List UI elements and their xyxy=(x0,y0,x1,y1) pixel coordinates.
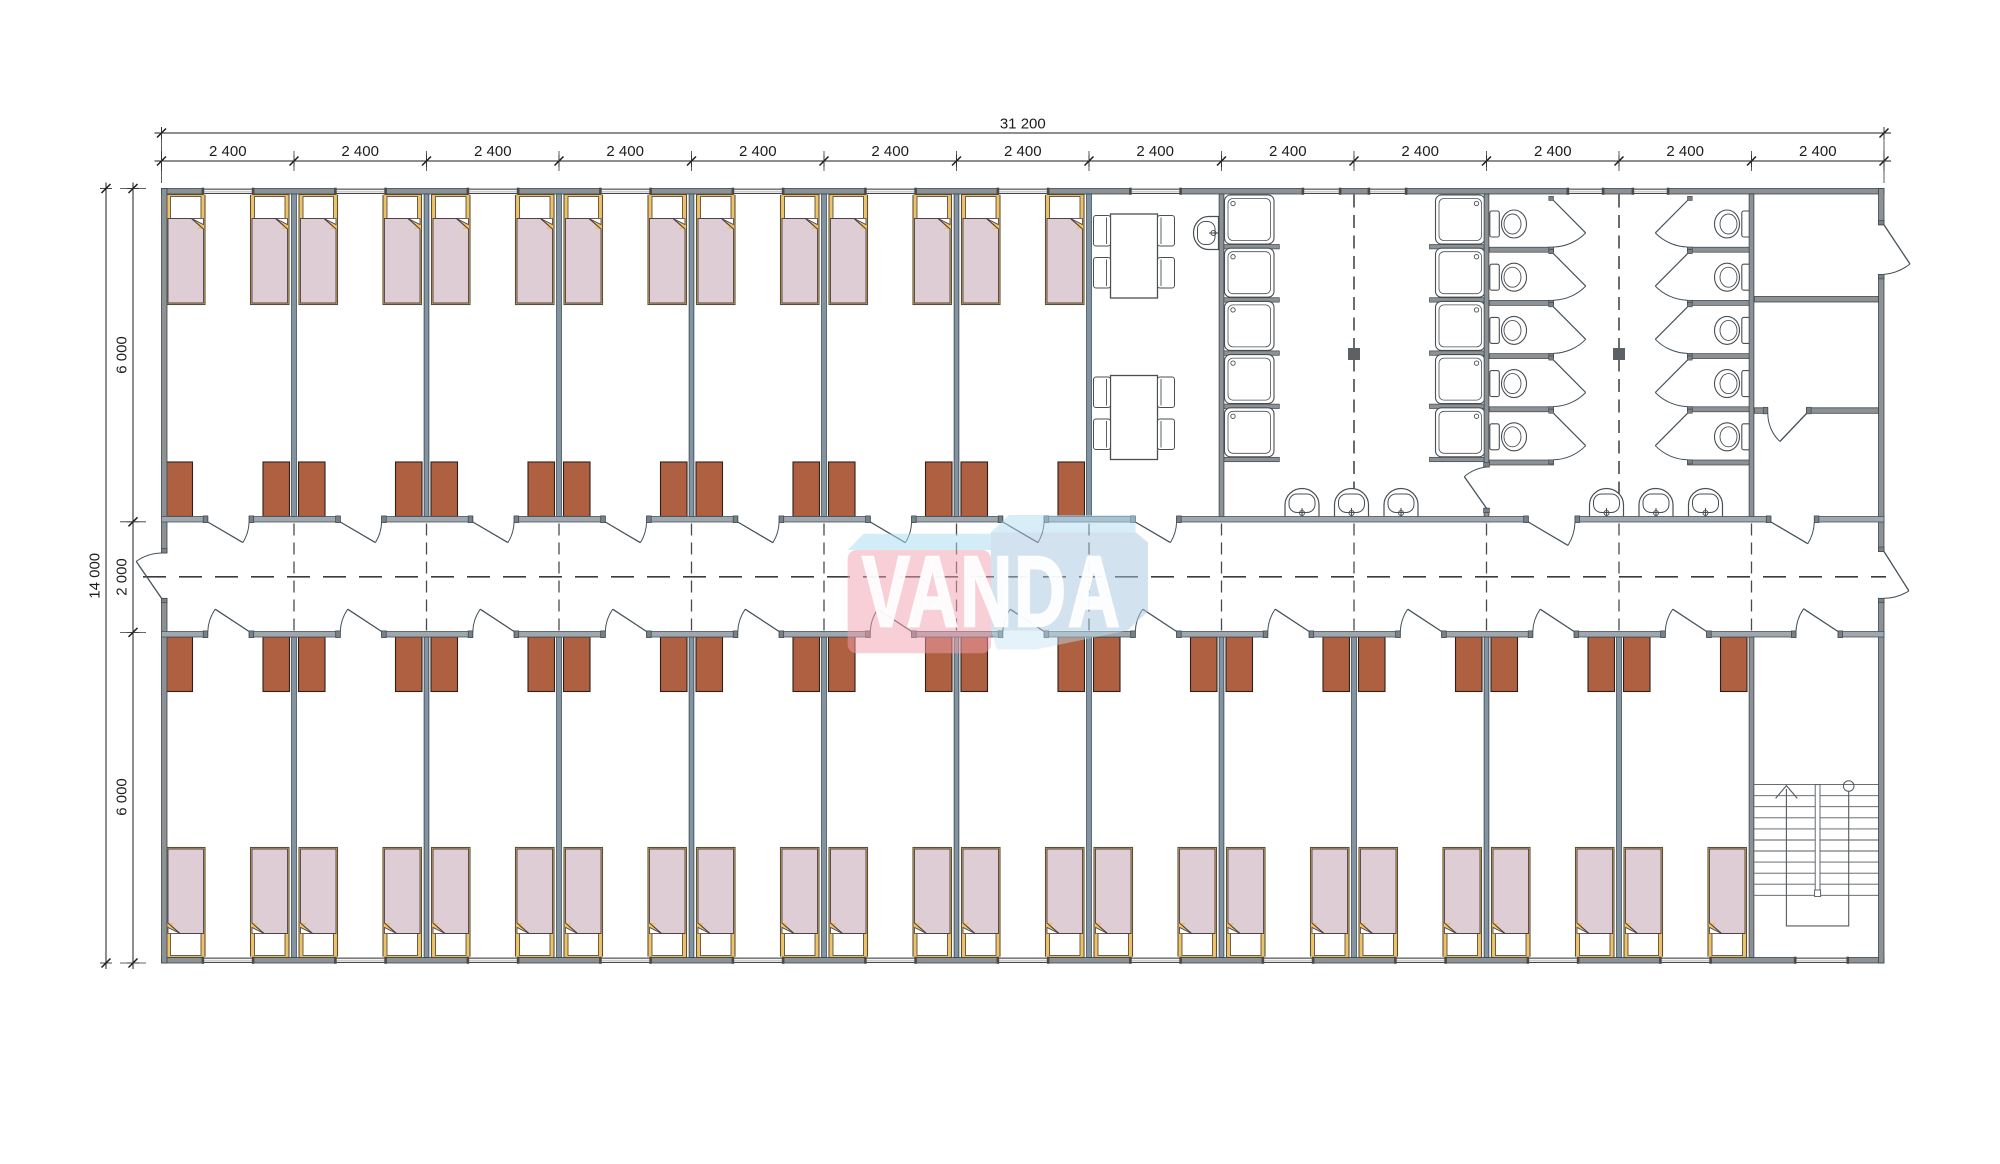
svg-text:2 400: 2 400 xyxy=(1799,143,1837,160)
svg-text:2 400: 2 400 xyxy=(1269,143,1307,160)
svg-text:14 000: 14 000 xyxy=(87,553,104,599)
svg-text:VANDA: VANDA xyxy=(862,536,1122,647)
svg-text:2 400: 2 400 xyxy=(871,143,909,160)
svg-text:6 000: 6 000 xyxy=(114,336,131,374)
svg-text:31 200: 31 200 xyxy=(1000,116,1046,133)
svg-text:2 400: 2 400 xyxy=(739,143,777,160)
svg-text:2 400: 2 400 xyxy=(1004,143,1042,160)
svg-text:2 400: 2 400 xyxy=(1401,143,1439,160)
svg-text:6 000: 6 000 xyxy=(114,778,131,816)
svg-text:2 400: 2 400 xyxy=(209,143,247,160)
svg-text:2 400: 2 400 xyxy=(1666,143,1704,160)
svg-text:2 400: 2 400 xyxy=(606,143,644,160)
svg-text:2 400: 2 400 xyxy=(341,143,379,160)
svg-text:2 400: 2 400 xyxy=(1136,143,1174,160)
svg-text:2 400: 2 400 xyxy=(474,143,512,160)
svg-text:2 000: 2 000 xyxy=(114,558,131,596)
svg-text:2 400: 2 400 xyxy=(1534,143,1572,160)
